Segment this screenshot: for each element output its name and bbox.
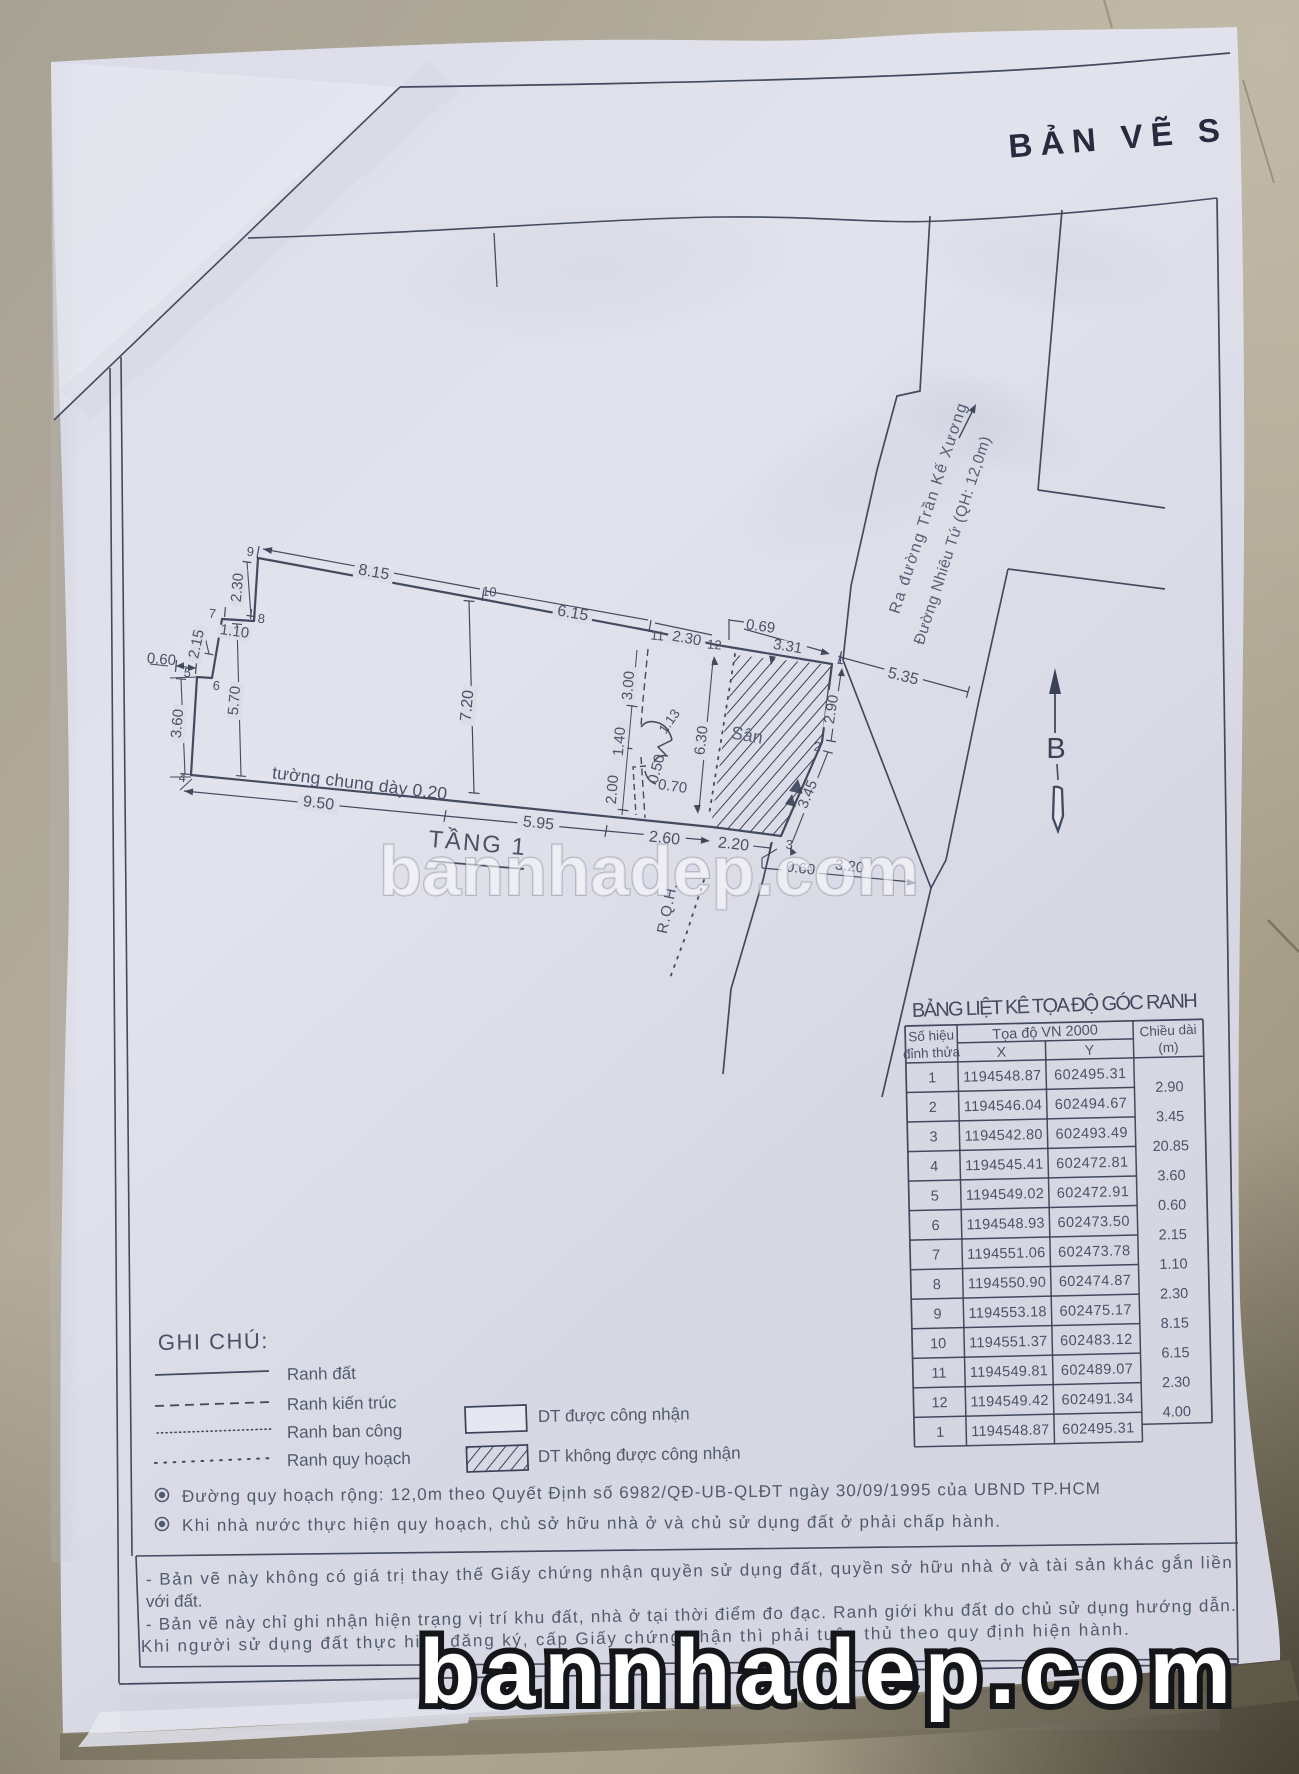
svg-text:12: 12 bbox=[707, 636, 723, 652]
svg-text:5.70: 5.70 bbox=[225, 685, 244, 716]
svg-text:3.60: 3.60 bbox=[1157, 1168, 1186, 1185]
svg-text:1194548.87: 1194548.87 bbox=[963, 1068, 1041, 1086]
svg-text:9: 9 bbox=[933, 1307, 941, 1323]
svg-text:1194553.18: 1194553.18 bbox=[968, 1304, 1046, 1322]
svg-text:8: 8 bbox=[257, 611, 266, 627]
svg-text:1194549.02: 1194549.02 bbox=[966, 1186, 1044, 1204]
svg-text:7: 7 bbox=[208, 606, 217, 622]
svg-text:Y: Y bbox=[1084, 1042, 1095, 1058]
svg-text:0.60: 0.60 bbox=[146, 650, 177, 669]
svg-text:10: 10 bbox=[930, 1336, 946, 1352]
svg-text:1: 1 bbox=[936, 1425, 944, 1441]
svg-text:8: 8 bbox=[933, 1277, 941, 1293]
svg-text:3.60: 3.60 bbox=[168, 708, 187, 739]
svg-text:602475.17: 602475.17 bbox=[1059, 1302, 1131, 1320]
svg-text:4: 4 bbox=[930, 1159, 938, 1175]
svg-text:12: 12 bbox=[931, 1395, 947, 1411]
svg-text:X: X bbox=[996, 1044, 1007, 1060]
svg-text:6: 6 bbox=[212, 678, 221, 694]
svg-text:2.15: 2.15 bbox=[1159, 1227, 1188, 1244]
svg-text:4.00: 4.00 bbox=[1163, 1404, 1192, 1421]
svg-text:Ranh quy hoạch: Ranh quy hoạch bbox=[287, 1449, 411, 1470]
svg-text:602472.91: 602472.91 bbox=[1057, 1184, 1129, 1202]
svg-text:1.40: 1.40 bbox=[610, 726, 629, 757]
svg-text:1194549.81: 1194549.81 bbox=[970, 1363, 1048, 1381]
svg-text:3: 3 bbox=[929, 1129, 937, 1145]
svg-text:11: 11 bbox=[650, 627, 665, 643]
svg-text:1194542.80: 1194542.80 bbox=[964, 1127, 1042, 1145]
svg-text:1194549.42: 1194549.42 bbox=[970, 1393, 1048, 1411]
svg-text:602489.07: 602489.07 bbox=[1061, 1361, 1133, 1379]
svg-text:Ranh đất: Ranh đất bbox=[287, 1364, 357, 1384]
svg-text:(m): (m) bbox=[1158, 1040, 1179, 1056]
svg-text:602474.87: 602474.87 bbox=[1059, 1273, 1131, 1291]
svg-text:1: 1 bbox=[836, 652, 845, 668]
svg-text:602491.34: 602491.34 bbox=[1061, 1391, 1133, 1409]
svg-text:602473.50: 602473.50 bbox=[1057, 1214, 1129, 1232]
svg-text:với đất.: với đất. bbox=[146, 1592, 203, 1611]
svg-text:3.45: 3.45 bbox=[1156, 1109, 1185, 1126]
svg-text:20.85: 20.85 bbox=[1152, 1138, 1189, 1155]
svg-text:0.60: 0.60 bbox=[1158, 1197, 1187, 1214]
svg-text:6.30: 6.30 bbox=[691, 725, 711, 756]
svg-text:9: 9 bbox=[246, 544, 255, 560]
svg-text:1194551.06: 1194551.06 bbox=[967, 1245, 1045, 1263]
svg-text:1194546.04: 1194546.04 bbox=[964, 1097, 1042, 1115]
svg-text:Ranh kiến trúc: Ranh kiến trúc bbox=[287, 1393, 397, 1414]
svg-text:DT được công nhận: DT được công nhận bbox=[538, 1404, 690, 1426]
svg-text:3.00: 3.00 bbox=[619, 670, 638, 701]
svg-text:5: 5 bbox=[183, 665, 192, 681]
svg-text:2.90: 2.90 bbox=[1155, 1079, 1184, 1096]
svg-text:6: 6 bbox=[931, 1218, 939, 1234]
svg-text:bannhadep.com: bannhadep.com bbox=[379, 832, 919, 910]
svg-text:1.10: 1.10 bbox=[1159, 1256, 1188, 1273]
svg-text:602472.81: 602472.81 bbox=[1056, 1155, 1128, 1173]
svg-text:Số hiệu: Số hiệu bbox=[908, 1027, 954, 1044]
svg-text:8.15: 8.15 bbox=[1161, 1315, 1190, 1332]
svg-text:2.00: 2.00 bbox=[603, 774, 622, 805]
svg-text:B: B bbox=[1046, 733, 1065, 765]
svg-text:1: 1 bbox=[928, 1070, 936, 1086]
svg-text:4: 4 bbox=[178, 770, 187, 786]
svg-text:7: 7 bbox=[932, 1248, 940, 1264]
svg-text:đỉnh thửa: đỉnh thửa bbox=[903, 1044, 961, 1062]
svg-text:602495.31: 602495.31 bbox=[1054, 1066, 1126, 1084]
svg-text:2.30: 2.30 bbox=[228, 572, 247, 603]
svg-text:602473.78: 602473.78 bbox=[1058, 1243, 1130, 1261]
svg-text:5: 5 bbox=[931, 1188, 939, 1204]
svg-text:6.15: 6.15 bbox=[1161, 1345, 1190, 1362]
svg-text:11: 11 bbox=[931, 1366, 946, 1382]
svg-text:1194545.41: 1194545.41 bbox=[965, 1157, 1043, 1175]
svg-text:602483.12: 602483.12 bbox=[1060, 1332, 1132, 1350]
svg-text:602495.31: 602495.31 bbox=[1062, 1420, 1134, 1438]
svg-text:Chiều dài: Chiều dài bbox=[1139, 1022, 1197, 1040]
svg-text:2.30: 2.30 bbox=[1160, 1286, 1189, 1303]
svg-text:2: 2 bbox=[813, 739, 822, 755]
svg-text:10: 10 bbox=[482, 583, 498, 599]
svg-text:5.95: 5.95 bbox=[522, 813, 555, 833]
svg-text:2.30: 2.30 bbox=[1162, 1375, 1191, 1392]
svg-text:1194548.87: 1194548.87 bbox=[971, 1422, 1049, 1440]
svg-text:1194548.93: 1194548.93 bbox=[966, 1216, 1044, 1234]
svg-text:1194551.37: 1194551.37 bbox=[969, 1334, 1047, 1352]
svg-text:Ranh ban công: Ranh ban công bbox=[287, 1421, 403, 1442]
svg-text:DT không được công nhận: DT không được công nhận bbox=[538, 1443, 741, 1466]
svg-text:GHI CHÚ:: GHI CHÚ: bbox=[158, 1328, 269, 1355]
svg-text:7.20: 7.20 bbox=[458, 689, 478, 722]
svg-text:1194550.90: 1194550.90 bbox=[968, 1275, 1046, 1293]
svg-text:602494.67: 602494.67 bbox=[1055, 1096, 1127, 1114]
svg-text:2: 2 bbox=[929, 1100, 937, 1116]
svg-text:602493.49: 602493.49 bbox=[1055, 1125, 1127, 1143]
